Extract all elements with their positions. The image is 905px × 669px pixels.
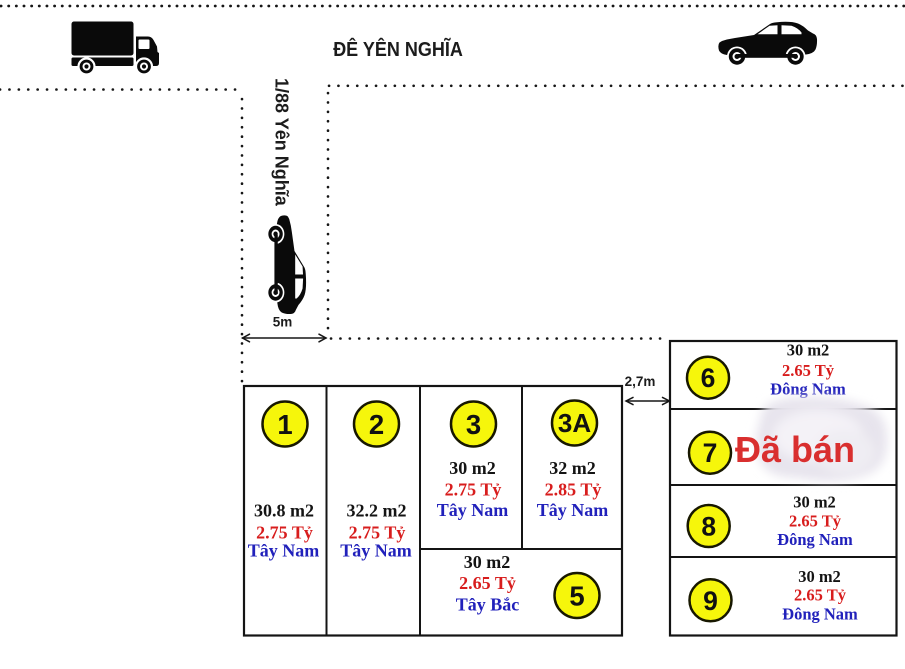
svg-text:32.2 m2: 32.2 m2 [347, 501, 407, 521]
svg-text:2.65 Tỷ: 2.65 Tỷ [794, 586, 847, 605]
svg-text:30 m2: 30 m2 [787, 341, 830, 360]
svg-text:2: 2 [369, 409, 384, 440]
svg-text:8: 8 [701, 512, 716, 542]
svg-text:Tây Nam: Tây Nam [537, 500, 609, 520]
svg-text:2.65 Tỷ: 2.65 Tỷ [789, 512, 842, 531]
svg-text:30 m2: 30 m2 [449, 458, 496, 478]
svg-text:5: 5 [569, 581, 584, 612]
svg-text:6: 6 [701, 363, 716, 393]
svg-text:Tây Nam: Tây Nam [437, 500, 509, 520]
svg-text:Đông Nam: Đông Nam [782, 605, 858, 624]
svg-text:2.65 Tỷ: 2.65 Tỷ [782, 361, 835, 380]
svg-text:7: 7 [703, 438, 718, 468]
svg-text:30.8 m2: 30.8 m2 [254, 501, 314, 521]
svg-text:30 m2: 30 m2 [798, 567, 841, 586]
svg-text:2.85 Tỷ: 2.85 Tỷ [545, 480, 602, 500]
svg-text:2.75 Tỷ: 2.75 Tỷ [256, 523, 313, 543]
svg-text:Tây Bắc: Tây Bắc [456, 595, 520, 615]
svg-text:9: 9 [703, 586, 718, 616]
svg-text:5m: 5m [273, 315, 293, 330]
svg-text:Tây Nam: Tây Nam [248, 541, 320, 561]
svg-text:Đã bán: Đã bán [735, 429, 855, 470]
svg-text:ĐÊ YÊN NGHĨA: ĐÊ YÊN NGHĨA [333, 38, 463, 61]
svg-text:1: 1 [277, 409, 292, 440]
svg-text:Đông Nam: Đông Nam [770, 380, 846, 399]
svg-text:30 m2: 30 m2 [793, 493, 836, 512]
svg-text:3A: 3A [558, 408, 591, 438]
svg-text:2.75 Tỷ: 2.75 Tỷ [349, 523, 406, 543]
svg-text:3: 3 [466, 409, 481, 440]
svg-text:2.75 Tỷ: 2.75 Tỷ [445, 480, 502, 500]
svg-text:2.65 Tỷ: 2.65 Tỷ [459, 573, 516, 593]
svg-text:1/88 Yên Nghĩa: 1/88 Yên Nghĩa [272, 78, 292, 207]
svg-text:32 m2: 32 m2 [549, 458, 596, 478]
svg-text:Tây Nam: Tây Nam [340, 541, 412, 561]
svg-text:Đông Nam: Đông Nam [777, 530, 853, 549]
svg-text:2,7m: 2,7m [625, 374, 656, 389]
svg-text:30 m2: 30 m2 [464, 552, 511, 572]
